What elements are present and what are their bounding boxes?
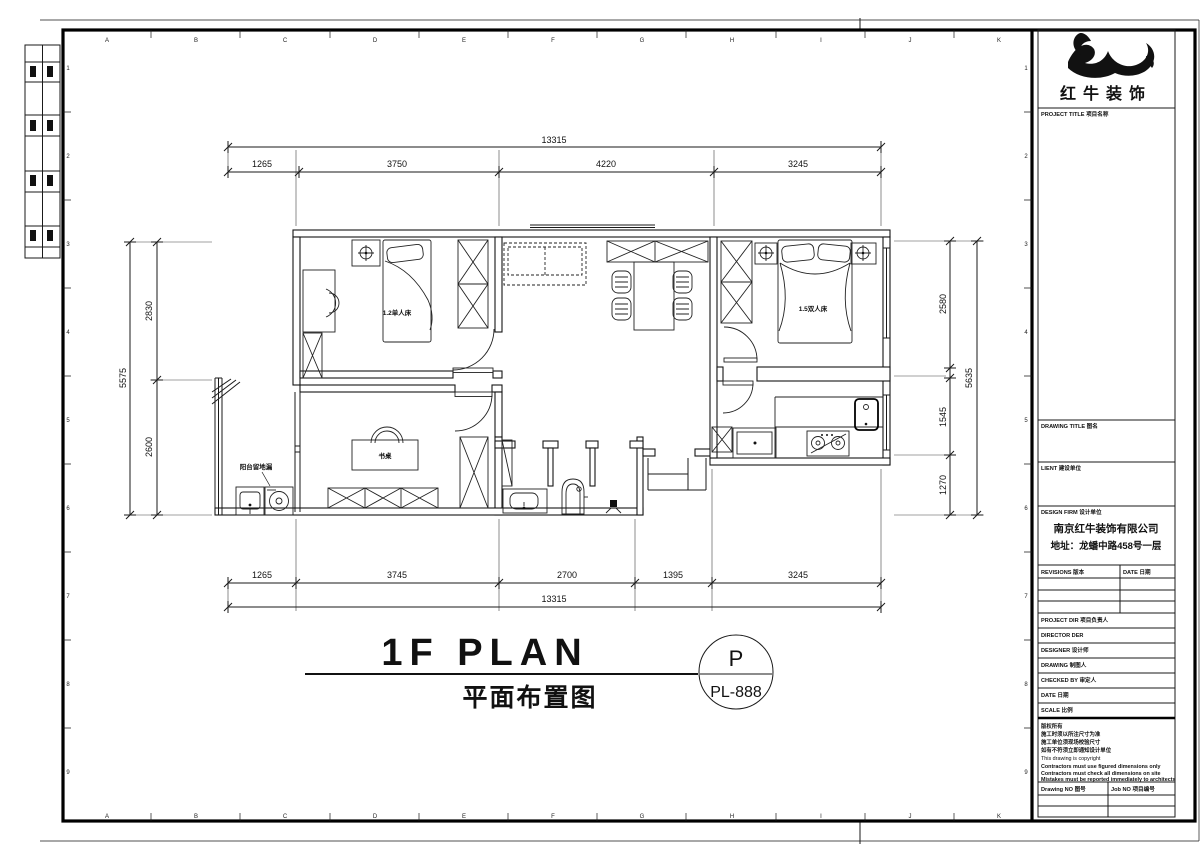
dining-table [634,262,674,330]
desk-label: 书桌 [379,451,393,460]
brand-name: 红牛装饰 [1060,84,1152,103]
field-director: DIRECTOR DER [1041,633,1083,639]
floor-plan: 1.2单人床 [212,225,890,515]
grid-letter: E [462,38,466,44]
balcony-note: 阳台留地漏 [240,462,273,471]
field-client: LIENT 建设单位 [1041,464,1081,472]
dining-chairs [612,271,692,320]
entry-landing [648,458,706,490]
dim-bottom-seg: 1395 [663,570,683,580]
dim-bottom-overall: 13315 [541,594,566,604]
note-line: 版权所有 [1040,722,1063,730]
sheet-frame [40,18,1199,844]
dim-bottom-seg: 3245 [788,570,808,580]
note-line: 如有不符须立即通知设计单位 [1041,746,1112,754]
grid-letter: F [551,814,555,820]
firm-address: 地址：龙蟠中路458号一层 [1051,540,1162,552]
binding-strip [25,45,60,258]
title-block: 红牛装饰 PROJECT TITLE 项目名称 DRAWING TITLE 图名… [1038,30,1176,817]
ceiling-lamp-icon [855,245,871,261]
dim-bottom-seg: 3745 [387,570,407,580]
dim-right-seg: 1545 [938,407,948,427]
grid-number: 4 [1024,330,1028,336]
field-scale: SCALE 比例 [1041,706,1073,714]
grid-letter: G [640,814,645,820]
field-project-dir: PROJECT DIR 项目负责人 [1041,616,1109,624]
grid-letter: J [909,814,912,820]
dim-right-seg: 2580 [938,294,948,314]
grid-number: 9 [66,770,70,776]
grid-letter: B [194,38,198,44]
grid-number: 3 [1024,242,1028,248]
note-line: This drawing is copyright [1041,756,1101,762]
wardrobe [458,240,488,328]
dim-left-total: 5575 [118,368,128,388]
grid-letter: C [283,38,288,44]
pillow [781,243,814,262]
wardrobe [460,437,488,508]
field-job-no: Job NO 项目编号 [1111,785,1155,793]
binding-strip-marks [30,66,53,241]
dim-left-seg: 2830 [144,301,154,321]
field-drawing-no: Drawing NO 图号 [1041,785,1086,793]
grid-number: 8 [1024,682,1028,688]
dim-right-total: 5635 [964,368,974,388]
field-checked-by: CHECKED BY 审定人 [1041,676,1097,684]
drawing-sheet: A B C D E F G H I J K A B C D E F G H I … [0,0,1200,844]
dim-top-seg: 3245 [788,159,808,169]
pillow [386,244,424,263]
grid-number: 5 [66,418,70,424]
grid-letter: D [373,38,378,44]
grid-number: 1 [66,66,70,72]
note-line: Contractors must use figured dimensions … [1041,764,1161,770]
field-drawing-by: DRAWING 制图人 [1041,661,1087,669]
grid-number: 3 [66,242,70,248]
dim-top-seg: 3750 [387,159,407,169]
grid-letter: A [105,38,109,44]
grid-number: 7 [1024,594,1028,600]
walls [215,230,890,515]
grid-letter: D [373,814,378,820]
double-bed [778,240,852,343]
grid-letter: H [730,814,734,820]
grid-number: 2 [66,154,70,160]
grid-letter: H [730,38,734,44]
grid-letter: I [820,38,822,44]
note-line: Mistakes must be reported immediately to… [1041,777,1176,783]
grid-number: 7 [66,594,70,600]
field-design-firm: DESIGN FIRM 设计单位 [1041,508,1102,516]
grid-letter: B [194,814,198,820]
grid-letter: G [640,38,645,44]
field-project-title: PROJECT TITLE 项目名称 [1041,110,1109,118]
field-date: DATE 日期 [1041,691,1069,699]
study-furniture: 书桌 [328,427,488,508]
grid-letter: I [820,814,822,820]
kitchen-counter [775,397,883,458]
grid-letter: K [997,814,1001,820]
dim-right-seg: 1270 [938,475,948,495]
plan-title-cn: 平面布置图 [462,683,597,712]
firm-name: 南京红牛装饰有限公司 [1054,522,1159,535]
dim-top-seg: 4220 [596,159,616,169]
grid-letter: C [283,814,288,820]
grid-number: 1 [1024,66,1028,72]
gas-stove [807,431,849,456]
dim-top-seg: 1265 [252,159,272,169]
grid-letter: E [462,814,466,820]
chair [326,289,339,317]
field-date-col: DATE 日期 [1123,568,1151,576]
dim-bottom-seg: 2700 [557,570,577,580]
bubble-code: PL-888 [710,684,762,701]
redbull-logo [1068,33,1154,78]
grid-number: 6 [66,506,70,512]
plan-title-en: 1F PLAN [381,632,588,674]
sofa [504,243,586,285]
grid-number: 5 [1024,418,1028,424]
wardrobe [721,241,752,323]
grid-number: 9 [1024,770,1028,776]
kitchen-sink [855,399,878,430]
ceiling-lamp-icon [758,245,774,261]
grid-letter: A [105,814,109,820]
bedroom1-furniture: 1.2单人床 [303,240,488,378]
balcony-fixtures: 阳台留地漏 [236,462,293,515]
ceiling-lamp-icon [358,245,374,261]
drawing-number-bubble: P PL-888 [699,635,773,709]
dim-top-overall: 13315 [541,135,566,145]
chair [371,427,403,443]
sideboard [607,241,708,262]
single-bed [383,240,431,342]
copyright-notes: 版权所有 施工时须以所注尺寸为准 施工单位须现场校验尺寸 如有不符须立即通知设计… [1040,722,1176,783]
grid-number: 8 [66,682,70,688]
living-dining-furniture [504,241,708,330]
bed1-label: 1.2单人床 [383,308,412,317]
grid-number: 4 [66,330,70,336]
drawing-title: 1F PLAN 平面布置图 P PL-888 [305,632,773,712]
grid-letter: F [551,38,555,44]
kitchen-furniture [712,397,883,458]
bedroom2-furniture: 1.5双人床 [721,240,876,343]
dim-left-seg: 2600 [144,437,154,457]
grid-letter: K [997,38,1001,44]
note-line: 施工时须以所注尺寸为准 [1041,730,1101,738]
bubble-letter: P [729,646,744,671]
grid-number: 2 [1024,154,1028,160]
bed2-label: 1.5双人床 [799,304,828,313]
dresser [303,270,335,332]
field-designer: DESIGNER 设计师 [1041,646,1089,654]
fridge [733,428,776,458]
pillow [817,243,850,262]
dim-bottom-seg: 1265 [252,570,272,580]
field-drawing-title: DRAWING TITLE 图名 [1041,422,1098,430]
bathroom-fixtures [502,440,621,514]
field-revisions: REVISIONS 版本 [1041,568,1085,576]
grid-number: 6 [1024,506,1028,512]
note-line: 施工单位须现场校验尺寸 [1041,738,1101,746]
low-cabinet [328,488,438,508]
grid-letter: J [909,38,912,44]
